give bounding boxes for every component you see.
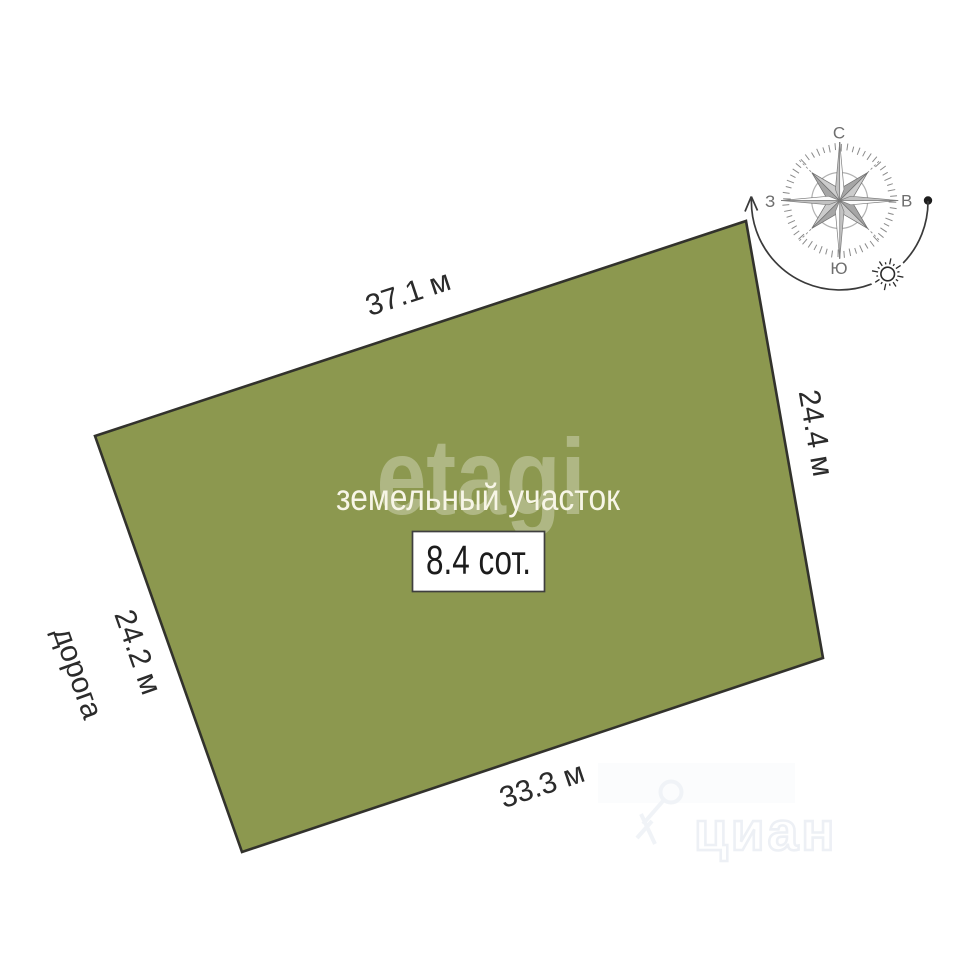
- svg-text:33.3 м: 33.3 м: [496, 756, 589, 815]
- svg-text:С: С: [833, 124, 845, 143]
- svg-text:37.1 м: 37.1 м: [362, 264, 455, 323]
- svg-text:дорога: дорога: [46, 623, 109, 723]
- svg-text:земельный участок: земельный участок: [336, 477, 621, 518]
- svg-text:8.4 сот.: 8.4 сот.: [426, 537, 531, 583]
- svg-text:В: В: [901, 192, 912, 211]
- svg-text:24.4 м: 24.4 м: [792, 387, 840, 479]
- svg-text:циан: циан: [694, 800, 837, 862]
- svg-text:З: З: [765, 192, 775, 211]
- svg-text:Ю: Ю: [830, 259, 847, 278]
